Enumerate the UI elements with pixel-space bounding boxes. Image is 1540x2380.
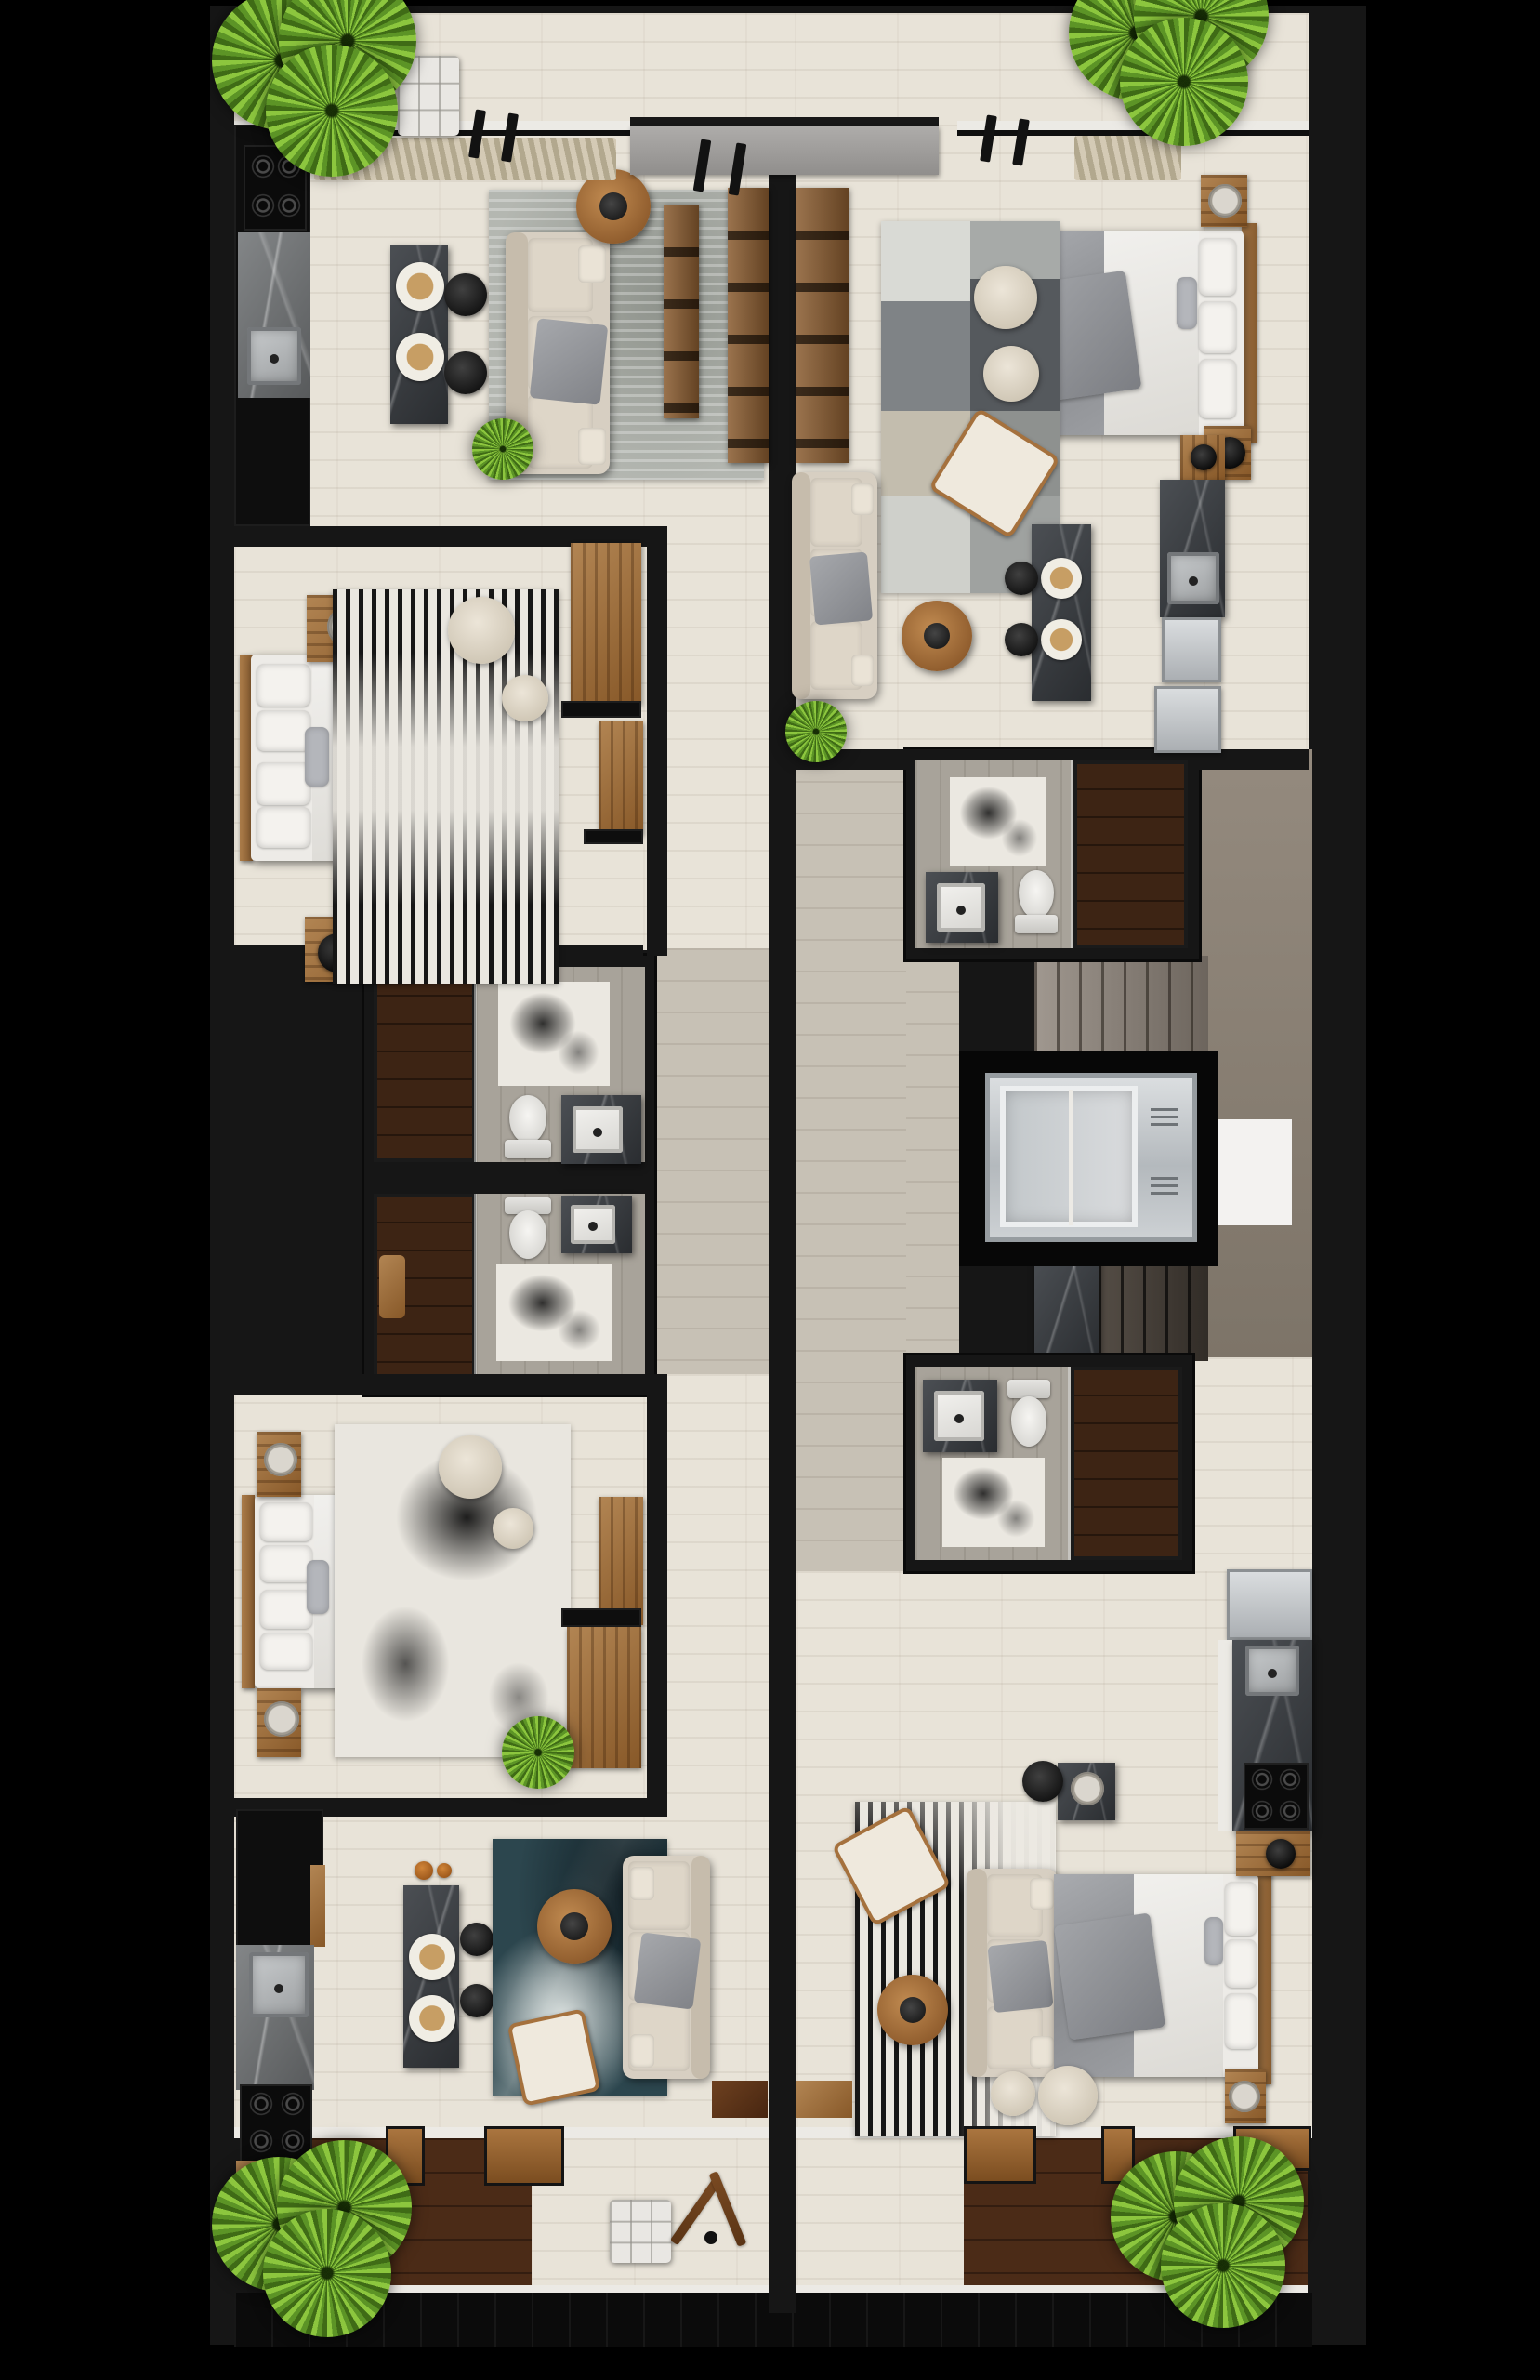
entry-console-left xyxy=(712,2081,768,2118)
burner xyxy=(281,2092,305,2116)
potted-palm-bottom-right xyxy=(1111,2136,1306,2332)
glass-tray xyxy=(264,1443,297,1476)
toilet-bowl xyxy=(509,1210,546,1259)
burner xyxy=(1279,1800,1301,1822)
place-setting xyxy=(1041,619,1082,660)
toilet-unit4 xyxy=(1007,1380,1050,1447)
accent-pillow xyxy=(1204,1917,1223,1965)
coffee-table-unit1 xyxy=(576,169,651,244)
sofa-pillow xyxy=(1030,1878,1054,1910)
sofa-throw xyxy=(634,1932,702,2009)
round-pouf xyxy=(502,675,548,721)
sofa-unit3 xyxy=(623,1856,710,2079)
hallway-unit2 xyxy=(796,749,906,1580)
burner xyxy=(1251,1800,1273,1822)
bath-mat-unit2 xyxy=(950,777,1046,866)
kitchen1-sink xyxy=(247,327,301,385)
sofa-unit4 xyxy=(967,1869,1058,2077)
stairs-upper-flight xyxy=(1034,956,1208,1052)
bar-stool xyxy=(1005,562,1038,595)
rug-patch-cell xyxy=(881,496,970,593)
toilet-unit2 xyxy=(1015,870,1058,933)
media-console-left xyxy=(728,188,769,463)
place-setting xyxy=(396,333,444,381)
bar-stool xyxy=(1005,623,1038,656)
entry-bench xyxy=(630,126,939,175)
rug-patch-cell xyxy=(881,221,970,301)
sofa-pillow xyxy=(630,2034,654,2068)
toilet-tank xyxy=(1007,1380,1050,1398)
headboard-unit4 xyxy=(1257,1867,1271,2084)
toilet-tank xyxy=(1015,915,1058,933)
unit-bottom-right-kitchen-strip xyxy=(1190,1357,1312,1571)
decor-tray xyxy=(1208,184,1242,218)
shower-glass-unit2 xyxy=(1071,760,1073,948)
pillow xyxy=(260,1590,312,1629)
kitchen4-sink xyxy=(1245,1646,1299,1696)
accent-pillow xyxy=(307,1560,329,1614)
shower-unit1 xyxy=(374,967,476,1162)
shower-stool xyxy=(379,1255,405,1318)
counter-lamp xyxy=(1191,444,1217,470)
pillow xyxy=(1225,1993,1257,2049)
media-console-right xyxy=(796,188,849,463)
accent-pillow xyxy=(1177,277,1197,329)
palm-frond xyxy=(1161,2203,1285,2328)
burner xyxy=(277,193,301,218)
sofa-pillow xyxy=(851,654,874,686)
shower-unit2 xyxy=(1073,760,1188,948)
sofa-pillow xyxy=(851,483,874,515)
shower-unit4 xyxy=(1071,1367,1182,1560)
elevator-door-line xyxy=(1069,1090,1073,1225)
pillow xyxy=(1199,359,1236,418)
round-pouf xyxy=(974,266,1037,329)
tv-console-unit1 xyxy=(664,205,699,418)
wall-bedroom3-right xyxy=(647,1374,667,1804)
round-pouf xyxy=(439,1435,502,1499)
stair-marble-wall xyxy=(1034,1255,1099,1361)
vanity-unit1 xyxy=(561,1095,641,1164)
potted-palm-bottom-left xyxy=(212,2140,412,2340)
burner xyxy=(251,193,275,218)
rug-fade xyxy=(333,589,559,984)
pillow xyxy=(1225,1939,1257,1988)
bar-stool xyxy=(444,351,487,394)
place-setting xyxy=(1041,558,1082,599)
vanity-unit3 xyxy=(561,1196,632,1253)
shower-glass-unit3 xyxy=(474,1194,477,1385)
hallway-unit1 xyxy=(651,948,769,1374)
vanity-basin xyxy=(573,1106,623,1153)
candle-tray xyxy=(264,1701,299,1737)
coffee-table-unit3 xyxy=(537,1889,612,1963)
burner xyxy=(1251,1768,1273,1791)
elevator-lobby xyxy=(1218,1119,1292,1225)
round-stool xyxy=(1022,1761,1063,1802)
fridge-unit4 xyxy=(1227,1569,1312,1640)
orange-vase xyxy=(415,1861,433,1880)
bar-stool xyxy=(460,1923,494,1956)
toilet-unit1 xyxy=(505,1095,551,1160)
coffee-table-unit2 xyxy=(902,601,972,671)
toilet-bowl xyxy=(509,1095,546,1144)
balcony-bench xyxy=(487,2129,561,2183)
elevator-vent-bottom xyxy=(1151,1177,1178,1197)
table-lamp xyxy=(1266,1839,1296,1869)
stairs-lower-flight xyxy=(1099,1257,1208,1361)
toilet-tank xyxy=(505,1140,551,1158)
vanity-basin xyxy=(571,1205,615,1244)
dresser-top xyxy=(584,829,643,844)
headboard-unit3 xyxy=(242,1495,255,1688)
elevator-vent-top xyxy=(1151,1108,1178,1129)
bar-stool xyxy=(444,273,487,316)
shower-glass-unit4 xyxy=(1068,1367,1071,1560)
wall-bedroom1-right xyxy=(647,526,667,956)
sofa-pillow xyxy=(1030,2036,1054,2068)
bath-mat-unit1 xyxy=(498,982,610,1086)
pillow xyxy=(1225,1882,1257,1936)
sofa-throw xyxy=(987,1940,1053,2013)
bed-unit4 xyxy=(1054,1874,1258,2077)
pillow xyxy=(1199,301,1236,353)
central-party-wall xyxy=(769,119,796,2313)
hallway-core xyxy=(906,959,959,1355)
toilet-unit3 xyxy=(505,1197,551,1261)
lounge-chair-unit3 xyxy=(507,2008,601,2106)
palm-frond xyxy=(263,2209,391,2337)
potted-palm-top-right xyxy=(1069,0,1269,149)
dresser-unit3 xyxy=(599,1497,643,1625)
entry-ottoman-unit3 xyxy=(610,2200,671,2263)
burner xyxy=(249,2092,273,2116)
wardrobe-unit1 xyxy=(571,543,641,705)
kitchen4-cabinet-front xyxy=(1218,1640,1232,1831)
pillow xyxy=(257,664,310,707)
round-pouf xyxy=(1038,2066,1098,2125)
dresser-unit1 xyxy=(599,721,643,835)
pillow xyxy=(257,762,310,805)
kitchen2-sink xyxy=(1167,552,1219,604)
easel-base xyxy=(704,2231,717,2244)
wardrobe-shelf xyxy=(561,701,641,718)
sofa-unit2 xyxy=(792,472,877,699)
sofa-pillow xyxy=(630,1867,654,1900)
kitchen3-sink xyxy=(249,1952,309,2017)
place-setting xyxy=(409,1995,455,2042)
cooktop-unit4 xyxy=(1244,1763,1309,1830)
round-pouf xyxy=(991,2071,1035,2116)
small-plant-unit3 xyxy=(502,1716,574,1789)
potted-palm-top-left xyxy=(212,0,416,177)
round-pouf xyxy=(983,346,1039,402)
toilet-bowl xyxy=(1011,1396,1046,1447)
sofa-pillow xyxy=(578,245,606,283)
pillow xyxy=(1199,238,1236,296)
orange-vase xyxy=(437,1863,452,1878)
palm-frond xyxy=(1120,18,1248,146)
decor-tray xyxy=(1229,2081,1260,2112)
round-pouf xyxy=(448,597,515,664)
shower-glass-unit1 xyxy=(474,967,477,1162)
round-pouf xyxy=(493,1508,533,1549)
sofa-throw xyxy=(530,318,609,404)
fridge-unit2 xyxy=(1154,686,1221,753)
vanity-unit2 xyxy=(926,872,998,943)
vanity-unit4 xyxy=(923,1380,997,1452)
place-setting xyxy=(396,262,444,311)
sofa-back xyxy=(792,472,810,699)
bed-throw xyxy=(1054,1912,1165,2040)
burner xyxy=(1279,1768,1301,1791)
small-plant-unit1 xyxy=(472,418,533,480)
kitchen3-wood-strip xyxy=(310,1865,325,1947)
entry-console-right xyxy=(796,2081,852,2118)
small-plant-unit2 xyxy=(785,701,847,762)
floor-plan-canvas xyxy=(0,0,1540,2380)
palm-frond xyxy=(266,45,398,177)
vanity-basin xyxy=(934,1391,984,1441)
desk-top-unit3 xyxy=(561,1608,641,1627)
accent-pillow xyxy=(305,727,329,787)
dishwasher-unit2 xyxy=(1162,617,1221,682)
rug-patch-cell xyxy=(881,301,970,411)
coffee-table-unit4 xyxy=(877,1975,948,2045)
entry-right xyxy=(796,2138,964,2289)
pillow xyxy=(257,710,310,751)
wall-bedroom3-top xyxy=(234,1374,667,1395)
place-setting xyxy=(409,1934,455,1980)
dining-island-unit2 xyxy=(1032,524,1091,701)
decor-tray xyxy=(1071,1772,1104,1805)
pillow xyxy=(260,1502,312,1541)
pillow xyxy=(257,807,310,848)
bath-mat-unit4 xyxy=(942,1458,1045,1547)
desk-unit3 xyxy=(567,1627,641,1768)
toilet-bowl xyxy=(1019,870,1054,919)
sofa-throw xyxy=(809,551,873,625)
sofa-pillow xyxy=(578,428,606,465)
bar-stool xyxy=(460,1984,494,2017)
bath-mat-unit3 xyxy=(496,1264,612,1361)
sofa-back xyxy=(967,1869,987,2077)
pillow xyxy=(260,1633,312,1670)
striped-rug-unit1 xyxy=(333,589,559,984)
balcony-bench xyxy=(967,2129,1033,2181)
headboard-unit2 xyxy=(1242,223,1257,443)
pillow xyxy=(260,1545,312,1582)
vanity-basin xyxy=(937,883,985,932)
